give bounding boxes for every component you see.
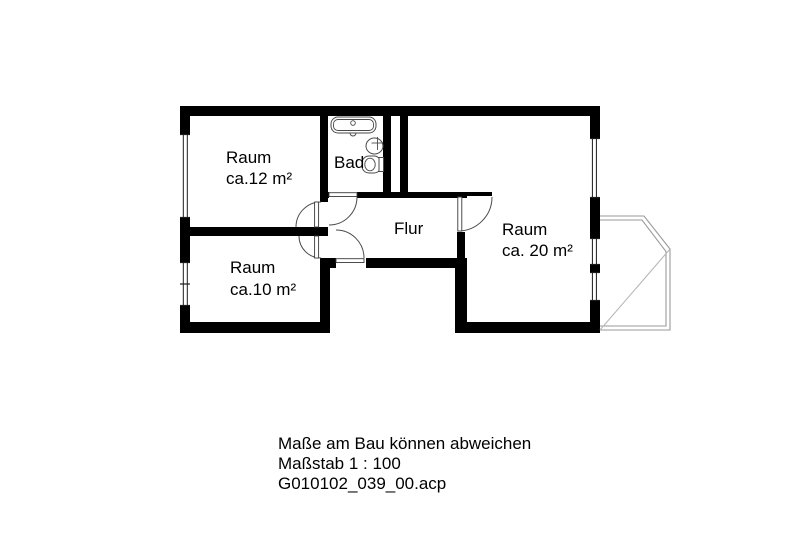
wall-notch-right	[455, 258, 467, 333]
balcony-outline	[600, 216, 670, 330]
door-arc-room20	[458, 197, 492, 231]
wall-flur-right-low	[457, 232, 465, 262]
wall-room20-door-lintel	[465, 192, 492, 196]
door-leaf-bad	[329, 193, 357, 197]
flur-name-label: Flur	[394, 219, 424, 238]
wall-flur-left-top	[320, 198, 328, 202]
wall-flur-bottom-a	[320, 258, 336, 268]
wall-bottom-right	[455, 322, 600, 333]
door-leaf-room10	[315, 236, 319, 258]
room20-area-label: ca. 20 m²	[502, 241, 573, 260]
wall-bottom-left	[180, 322, 330, 333]
footer-disclaimer: Maße am Bau können abweichen	[278, 434, 531, 453]
interior-walls	[190, 116, 492, 262]
balcony-diagonal	[600, 249, 670, 330]
wall-shaft	[400, 116, 408, 198]
floor-plan-canvas: Raum ca.12 m² Bad Flur Raum ca. 20 m² Ra…	[0, 0, 800, 538]
wall-left-middle	[180, 218, 190, 262]
window-room12-icon	[180, 134, 190, 218]
window-room10-icon	[180, 262, 190, 306]
wall-right-pier	[590, 265, 600, 272]
window-room20-upper-icon	[590, 138, 600, 198]
wall-flur-left-mid	[320, 227, 328, 236]
room-labels: Raum ca.12 m² Bad Flur Raum ca. 20 m² Ra…	[226, 148, 573, 299]
balcony-inner-edge	[600, 220, 666, 326]
floor-plan-page: Raum ca.12 m² Bad Flur Raum ca. 20 m² Ra…	[0, 0, 800, 538]
footer-filename: G010102_039_00.acp	[278, 474, 446, 493]
balcony-outer-edge	[600, 216, 670, 330]
room12-name-label: Raum	[226, 148, 271, 167]
bad-name-label: Bad	[334, 153, 364, 172]
room12-area-label: ca.12 m²	[226, 169, 292, 188]
bathtub-icon	[331, 117, 376, 136]
room10-name-label: Raum	[230, 258, 275, 277]
toilet-icon	[362, 156, 384, 173]
footer-notes: Maße am Bau können abweichen Maßstab 1 :…	[278, 434, 531, 493]
sink-icon	[366, 137, 383, 154]
wall-room12-bad	[320, 116, 328, 198]
wall-top	[180, 106, 600, 116]
wall-bad-bottom-b	[357, 192, 467, 198]
wall-bad-bottom-a	[320, 192, 329, 198]
door-arc-bad	[329, 197, 357, 225]
door-leaf-room12	[315, 202, 319, 227]
wall-bad-right	[383, 116, 391, 198]
wall-flur-bottom-b	[366, 258, 467, 268]
wall-notch-left	[320, 258, 330, 333]
wall-right-middle	[590, 198, 600, 238]
footer-scale: Maßstab 1 : 100	[278, 454, 401, 473]
room10-area-label: ca.10 m²	[230, 280, 296, 299]
door-leaf-room20	[458, 197, 462, 231]
room20-name-label: Raum	[502, 220, 547, 239]
wall-left-upper	[180, 106, 190, 134]
wall-room12-room10-divider	[190, 227, 328, 236]
door-arc-entrance	[336, 230, 364, 258]
door-leaf-entrance	[336, 259, 364, 263]
wall-right-lower	[590, 301, 600, 333]
wall-right-upper	[590, 106, 600, 138]
